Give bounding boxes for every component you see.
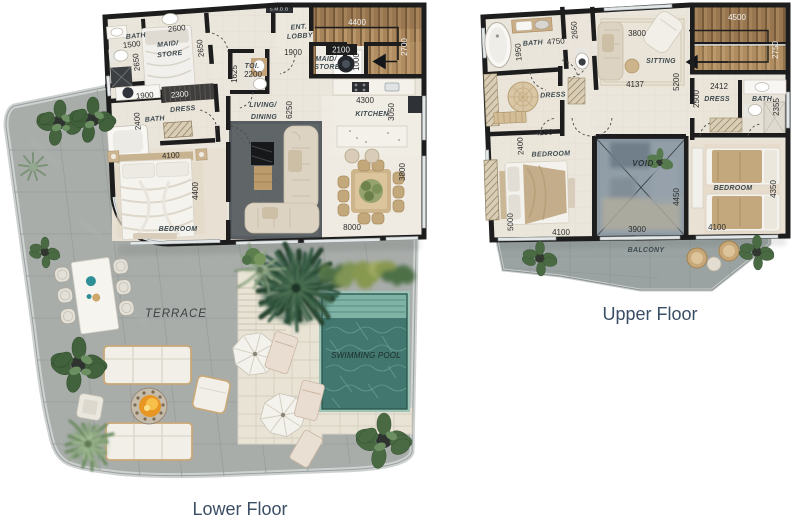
svg-text:4100: 4100 <box>162 151 181 161</box>
svg-text:SWIMMING POOL: SWIMMING POOL <box>331 351 401 360</box>
svg-text:BATH: BATH <box>752 96 773 103</box>
svg-text:2500: 2500 <box>692 90 701 108</box>
svg-text:2700: 2700 <box>400 38 409 56</box>
svg-text:3900: 3900 <box>628 225 646 234</box>
svg-text:4750: 4750 <box>547 36 566 46</box>
svg-text:5000: 5000 <box>506 212 516 231</box>
svg-text:4300: 4300 <box>356 96 374 105</box>
svg-text:VOID: VOID <box>632 159 654 168</box>
svg-text:6250: 6250 <box>285 101 294 119</box>
svg-text:ENT.: ENT. <box>290 23 307 31</box>
svg-text:TOI.: TOI. <box>245 63 260 70</box>
svg-text:BEDROOM: BEDROOM <box>714 185 753 192</box>
svg-text:BEDROOM: BEDROOM <box>159 226 198 233</box>
svg-text:4500: 4500 <box>728 13 746 22</box>
svg-text:DINING: DINING <box>251 114 278 121</box>
svg-text:2200: 2200 <box>244 70 262 79</box>
svg-text:Upper Floor: Upper Floor <box>602 304 697 324</box>
svg-text:BALCONY: BALCONY <box>628 247 666 254</box>
svg-text:2300: 2300 <box>171 89 190 100</box>
svg-text:2650: 2650 <box>569 20 579 39</box>
svg-text:1900: 1900 <box>284 48 302 57</box>
svg-text:2600: 2600 <box>167 23 186 34</box>
svg-text:KITCHEN: KITCHEN <box>355 111 389 118</box>
svg-text:4400: 4400 <box>191 182 200 200</box>
svg-text:4100: 4100 <box>552 228 570 237</box>
svg-text:2400: 2400 <box>132 111 143 130</box>
svg-text:3800: 3800 <box>628 29 646 38</box>
svg-text:4100: 4100 <box>708 223 726 232</box>
svg-text:3800: 3800 <box>398 163 407 181</box>
svg-text:5200: 5200 <box>672 73 681 91</box>
svg-text:2650: 2650 <box>195 38 206 57</box>
svg-text:DRESS: DRESS <box>540 91 566 99</box>
svg-text:2750: 2750 <box>771 41 780 59</box>
svg-text:4150: 4150 <box>535 128 554 138</box>
svg-text:1950: 1950 <box>513 42 523 61</box>
svg-text:4400: 4400 <box>348 18 366 27</box>
svg-text:2412: 2412 <box>710 82 728 91</box>
svg-text:BATH: BATH <box>523 39 544 47</box>
svg-text:2650: 2650 <box>131 52 142 71</box>
svg-text:TERRACE: TERRACE <box>145 308 207 320</box>
svg-text:MAID/: MAID/ <box>315 56 337 63</box>
svg-text:DRESS: DRESS <box>704 96 730 103</box>
svg-text:1900: 1900 <box>136 90 155 101</box>
svg-text:2100: 2100 <box>332 46 350 55</box>
svg-text:4450: 4450 <box>672 188 681 206</box>
svg-text:2355: 2355 <box>772 98 781 116</box>
svg-text:8000: 8000 <box>343 223 361 232</box>
svg-text:1625: 1625 <box>230 65 239 83</box>
svg-text:BEDROOM: BEDROOM <box>532 150 571 158</box>
svg-text:4137: 4137 <box>626 80 644 89</box>
svg-text:2400: 2400 <box>516 136 526 155</box>
svg-text:4350: 4350 <box>769 180 778 198</box>
svg-text:Lower Floor: Lower Floor <box>192 499 287 519</box>
svg-text:3050: 3050 <box>387 103 396 121</box>
svg-text:STORE: STORE <box>314 64 340 71</box>
svg-text:LIVING/: LIVING/ <box>249 102 277 109</box>
svg-text:1500: 1500 <box>122 39 141 50</box>
svg-text:SITTING: SITTING <box>646 58 676 65</box>
svg-text:1000: 1000 <box>352 53 361 71</box>
